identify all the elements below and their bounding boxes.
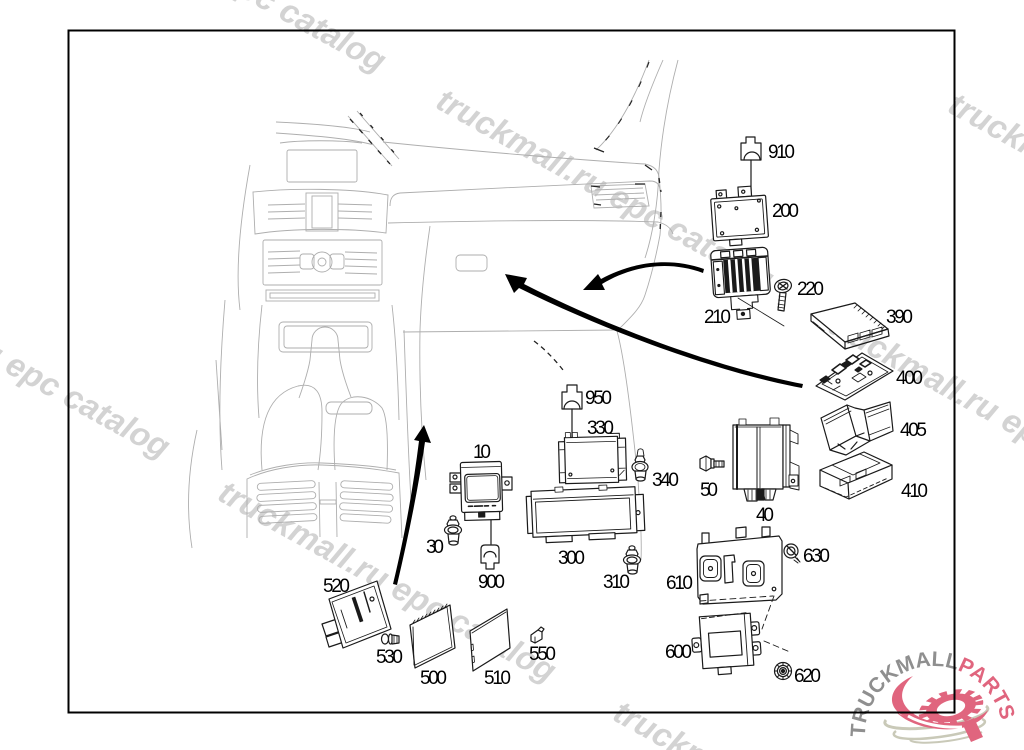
svg-text:truckmall.ru epc catalog: truckmall.ru epc catalog	[608, 693, 958, 750]
svg-text:950: 950	[585, 388, 612, 409]
svg-text:30: 30	[426, 537, 444, 558]
svg-text:500: 500	[420, 668, 447, 689]
svg-text:405: 405	[900, 420, 927, 441]
svg-text:610: 610	[666, 573, 693, 594]
svg-text:40: 40	[756, 505, 774, 526]
svg-text:220: 220	[797, 279, 824, 300]
svg-text:520: 520	[323, 576, 350, 597]
svg-text:630: 630	[803, 546, 830, 567]
svg-text:410: 410	[901, 481, 928, 502]
svg-text:210: 210	[704, 307, 731, 328]
svg-text:900: 900	[478, 572, 505, 593]
svg-text:310: 310	[603, 572, 630, 593]
svg-text:10: 10	[473, 442, 491, 463]
svg-text:620: 620	[794, 666, 821, 687]
svg-text:300: 300	[558, 548, 585, 569]
svg-text:330: 330	[587, 418, 614, 439]
svg-text:910: 910	[768, 142, 795, 163]
svg-text:200: 200	[772, 201, 799, 222]
svg-text:600: 600	[665, 642, 692, 663]
svg-text:390: 390	[886, 307, 913, 328]
svg-text:530: 530	[376, 647, 403, 668]
svg-text:340: 340	[652, 470, 679, 491]
svg-text:550: 550	[529, 644, 556, 665]
svg-text:400: 400	[896, 368, 923, 389]
svg-text:50: 50	[700, 480, 718, 501]
svg-text:truckmall.ru epc catalog: truckmall.ru epc catalog	[43, 0, 393, 79]
svg-text:510: 510	[484, 668, 511, 689]
svg-text:truckmall.ru epc catalog: truckmall.ru epc catalog	[0, 249, 177, 465]
